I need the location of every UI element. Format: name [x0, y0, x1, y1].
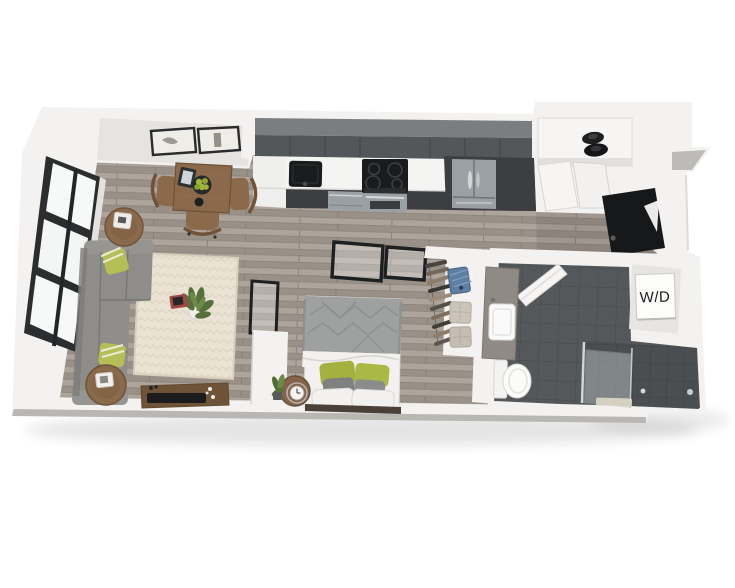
kitchen — [253, 118, 536, 212]
glass-panel-side — [250, 281, 278, 335]
fruit-bowl — [193, 176, 212, 195]
washer-dryer-closet: W/D — [629, 264, 681, 334]
upper-cabinets-top — [255, 118, 532, 138]
soundbar — [147, 393, 206, 403]
storage-bin — [447, 267, 471, 295]
shower-valve — [641, 389, 646, 394]
bed — [302, 296, 402, 414]
media-console — [141, 383, 229, 408]
faucet — [491, 298, 495, 302]
washer-dryer-label: W/D — [639, 288, 670, 306]
mug — [195, 198, 204, 207]
refrigerator — [444, 156, 536, 211]
floor-plan-canvas: W/D — [0, 0, 735, 588]
door-handle — [610, 235, 615, 240]
faucet — [303, 182, 307, 186]
side-table — [86, 365, 126, 405]
coffee-table-books — [169, 294, 188, 309]
shower-drain — [687, 389, 693, 395]
kitchen-sink — [289, 161, 323, 188]
counter-end-panel — [253, 156, 286, 208]
sliding-glass-panel — [332, 242, 383, 281]
upper-cabinets-front — [255, 135, 532, 160]
oven-window — [370, 201, 400, 209]
vanity — [482, 267, 519, 360]
sliding-glass-panel — [385, 247, 426, 280]
side-table — [105, 208, 143, 246]
bath-mat — [596, 398, 632, 407]
floor-plan: W/D — [0, 0, 735, 588]
front-door — [602, 188, 665, 256]
range-cooktop — [362, 159, 408, 212]
dishwasher — [328, 191, 363, 211]
fridge-handle — [468, 171, 472, 189]
